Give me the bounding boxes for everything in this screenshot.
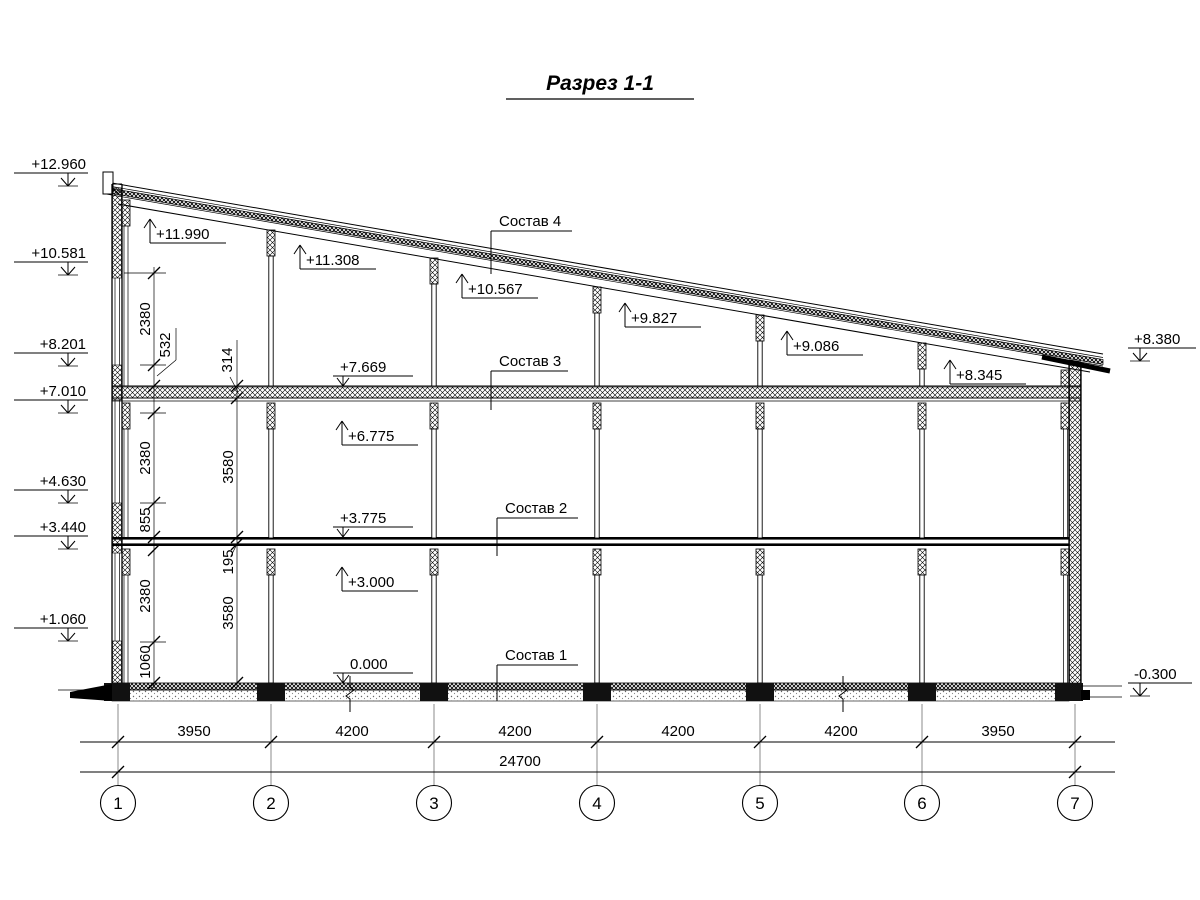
dim-label: 4200 [824, 723, 857, 740]
elevation-label: +3.775 [340, 510, 386, 527]
page-title: Разрез 1-1 [546, 72, 654, 95]
elevation-label: +6.775 [348, 428, 394, 445]
elevation-label: +7.010 [40, 383, 86, 400]
wall-hatch-panel [113, 188, 122, 278]
dim-label: 532 [157, 332, 174, 357]
floor-slab-middle [112, 537, 1069, 546]
section-drawing: Разрез 1-1 [0, 0, 1200, 900]
axis-number: 1 [113, 794, 122, 813]
window-frames [115, 278, 120, 641]
layer-label: Состав 4 [499, 213, 561, 230]
elevation-label: +3.000 [348, 574, 394, 591]
floor-slab-upper [112, 386, 1081, 401]
bottom-dimensions: 3950 4200 4200 4200 4200 3950 24700 [80, 704, 1115, 785]
dim-label: 2380 [137, 302, 154, 335]
right-apron [1081, 690, 1090, 700]
vertical-dimension-chain-outer: 2380 532 2380 855 2380 1060 [124, 267, 176, 689]
elevation-label: +12.960 [31, 156, 86, 173]
layer-label: Состав 2 [505, 500, 567, 517]
dim-314: 314 [219, 347, 238, 392]
footing [1055, 683, 1083, 701]
axis-number: 6 [917, 794, 926, 813]
dim-label: 3950 [177, 723, 210, 740]
elevation-label: +8.201 [40, 336, 86, 353]
dim-label: 1060 [137, 645, 154, 678]
elevation-label: 0.000 [350, 656, 388, 673]
dim-label: 3580 [220, 450, 237, 483]
footing [420, 683, 448, 701]
footing [746, 683, 774, 701]
elevation-label: +1.060 [40, 611, 86, 628]
elevation-label: -0.300 [1134, 666, 1177, 683]
right-wall [1061, 360, 1081, 683]
grid-axis-bubbles: 1 2 3 4 5 6 7 [101, 786, 1093, 821]
wall-inner-posts [1061, 370, 1069, 683]
elevation-label: +8.345 [956, 367, 1002, 384]
elevation-label: +9.086 [793, 338, 839, 355]
ground-slab [58, 676, 1122, 712]
wall-inner-posts [122, 200, 130, 683]
elevation-label: +7.669 [340, 359, 386, 376]
elevation-label: +11.308 [306, 252, 360, 269]
dim-label: 314 [219, 347, 236, 372]
wall-hatch-panel [1070, 363, 1081, 683]
dim-label: 3950 [981, 723, 1014, 740]
elevation-label: +9.827 [631, 310, 677, 327]
left-apron [70, 684, 112, 701]
dim-label: 2380 [137, 579, 154, 612]
dim-label: 2380 [137, 441, 154, 474]
layer-label: Состав 3 [499, 353, 561, 370]
footing [257, 683, 285, 701]
axis-number: 4 [592, 794, 601, 813]
elevation-label: +10.567 [468, 281, 523, 298]
layer-label: Состав 1 [505, 647, 567, 664]
elevation-label: +8.380 [1134, 331, 1180, 348]
elevation-label: +3.440 [40, 519, 86, 536]
elevation-marks-right: +8.380 -0.300 [1128, 331, 1196, 696]
elevation-marks-interior: +7.669 +6.775 +3.775 +3.000 0.000 [333, 359, 418, 683]
wall-hatch-panel [113, 641, 122, 683]
dim-label-total: 24700 [499, 753, 541, 770]
dim-label: 3580 [220, 596, 237, 629]
footing [583, 683, 611, 701]
dim-label: 4200 [661, 723, 694, 740]
axis-number: 3 [429, 794, 438, 813]
dim-label: 4200 [498, 723, 531, 740]
elevation-marks-left: +12.960 +10.581 +8.201 +7.010 +4.630 +3.… [14, 156, 88, 641]
footing [908, 683, 936, 701]
elevation-marks-roof: +11.990 +11.308 +10.567 +9.827 +9.086 +8… [144, 219, 1026, 384]
roof-structure [103, 172, 1110, 372]
dim-195: 195 [220, 542, 238, 575]
axis-number: 2 [266, 794, 275, 813]
elevation-label: +4.630 [40, 473, 86, 490]
roofing-layer-band [106, 188, 1103, 365]
dim-532: 532 [157, 328, 176, 376]
elevation-label: +10.581 [31, 245, 86, 262]
dim-label: 4200 [335, 723, 368, 740]
drawing-sheet: Разрез 1-1 [0, 0, 1200, 900]
dim-label: 855 [137, 507, 154, 532]
axis-number: 5 [755, 794, 764, 813]
axis-number: 7 [1070, 794, 1079, 813]
grid-extension-lines [118, 704, 1075, 785]
elevation-label: +11.990 [156, 226, 210, 243]
interior-columns [267, 230, 926, 683]
dim-label: 195 [220, 549, 237, 574]
drawing-title: Разрез 1-1 [506, 72, 694, 99]
left-wall [112, 184, 130, 683]
